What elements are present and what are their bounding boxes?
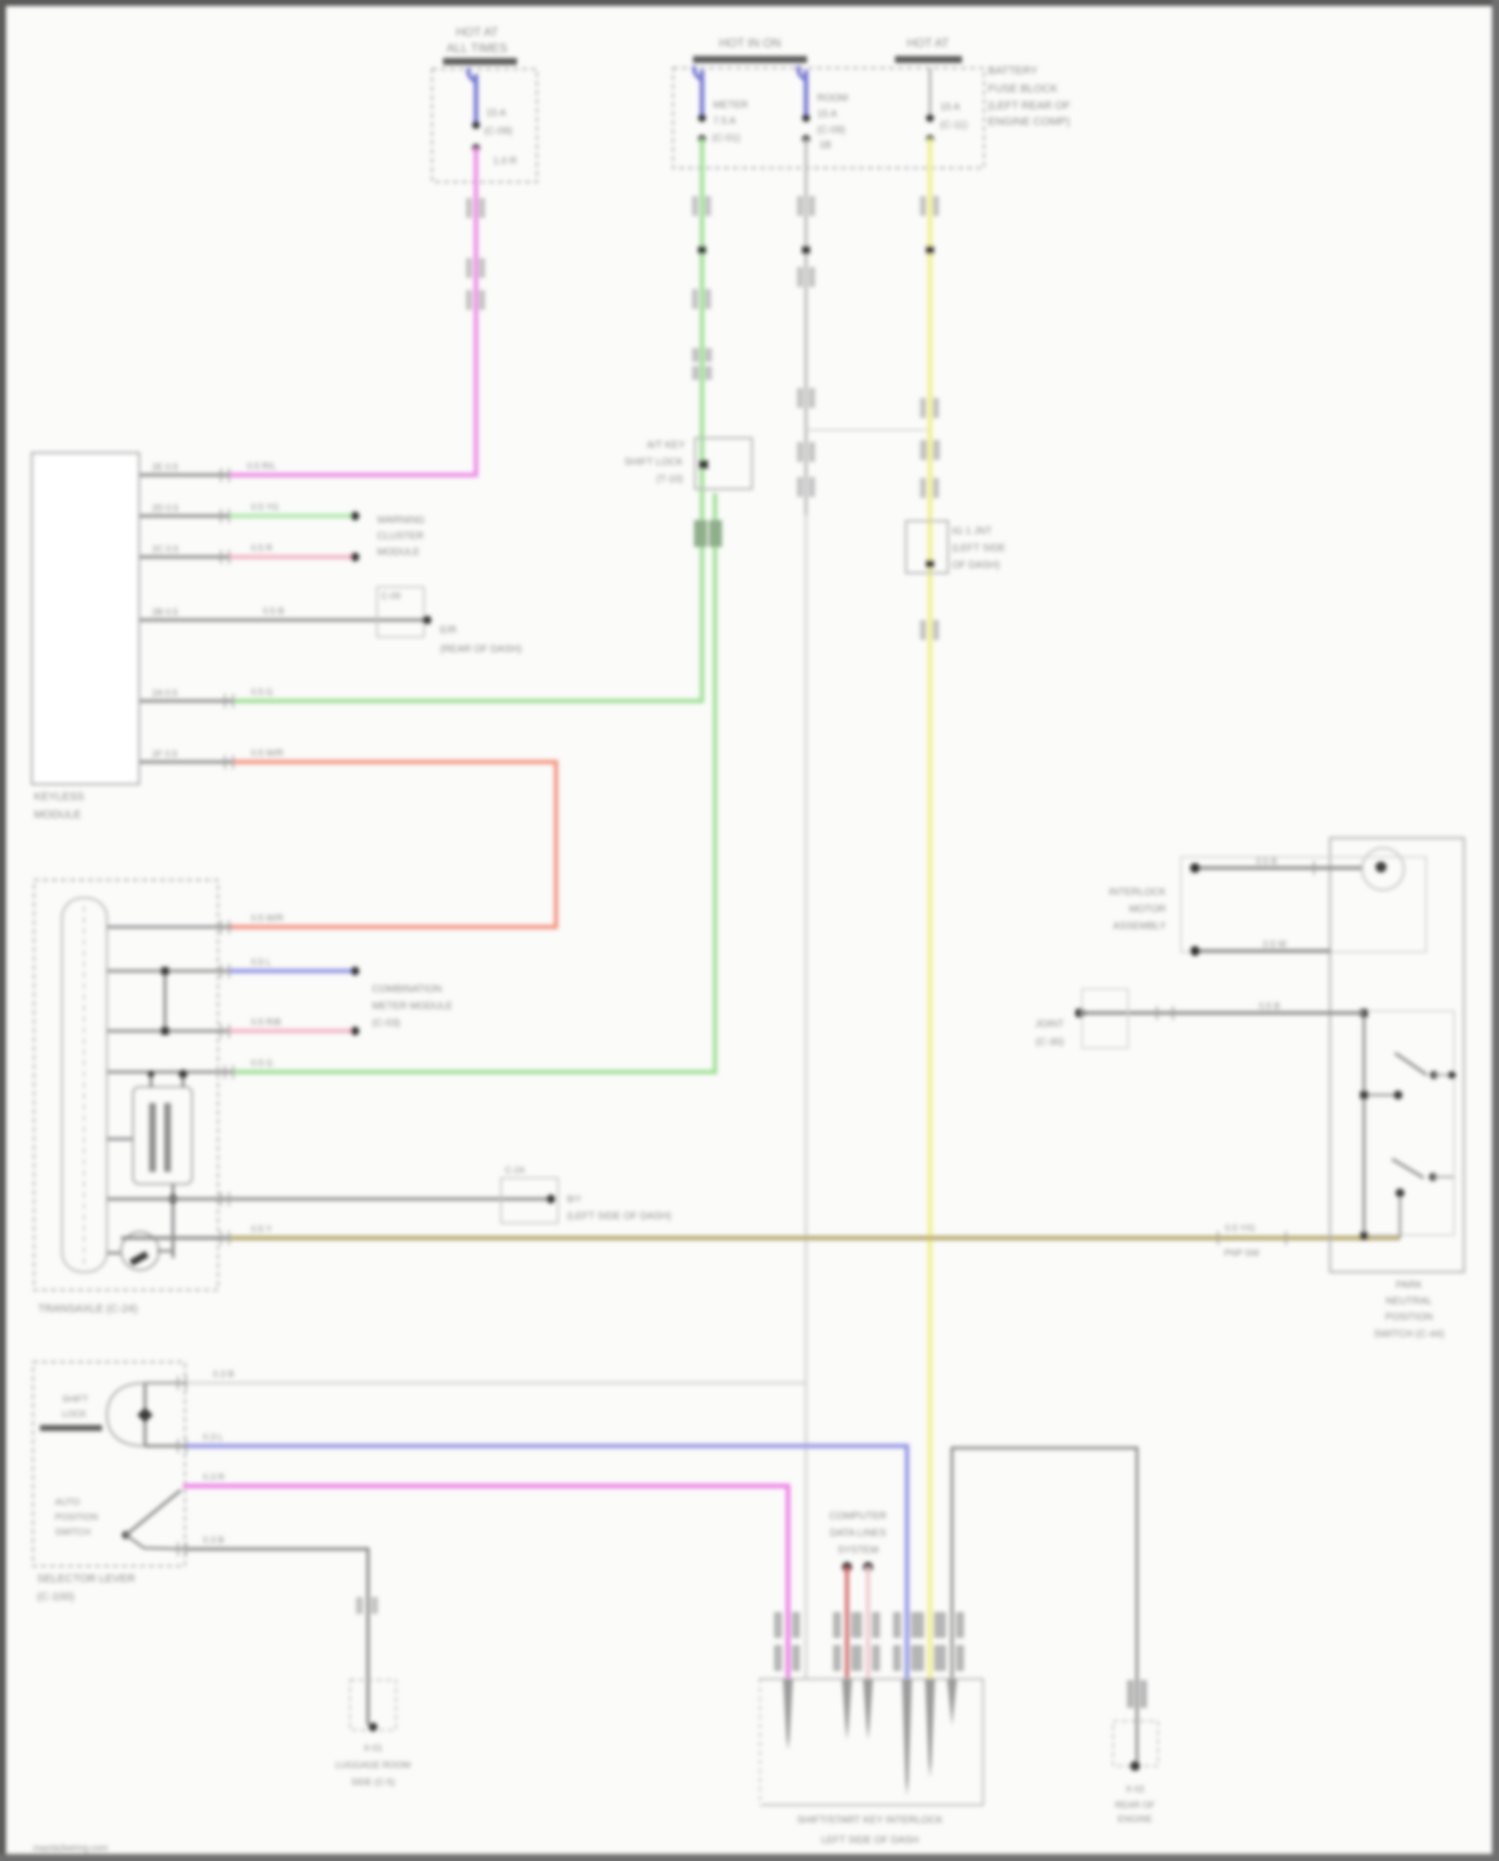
svg-text:(T-10): (T-10) — [656, 474, 683, 485]
svg-text:PARK: PARK — [1396, 1280, 1423, 1291]
svg-text:HOT AT: HOT AT — [907, 36, 950, 50]
svg-text:SWITCH: SWITCH — [55, 1527, 91, 1537]
svg-text:HOT AT: HOT AT — [456, 25, 499, 39]
svg-text:REAR OF: REAR OF — [1115, 1800, 1156, 1810]
svg-text:15 A: 15 A — [940, 102, 960, 113]
svg-text:0.5 B: 0.5 B — [263, 606, 284, 616]
svg-text:mazda3wiring.com: mazda3wiring.com — [33, 1843, 108, 1853]
svg-text:DATA LINES: DATA LINES — [830, 1528, 887, 1539]
svg-text:LEFT SIDE OF DASH: LEFT SIDE OF DASH — [821, 1835, 919, 1846]
svg-text:ALL TIMES: ALL TIMES — [447, 41, 508, 55]
svg-text:B/Y: B/Y — [567, 1194, 582, 1204]
svg-text:INTERLOCK: INTERLOCK — [1109, 887, 1167, 898]
svg-text:0.5 W/R: 0.5 W/R — [251, 748, 284, 758]
svg-text:0.5 B: 0.5 B — [1259, 1001, 1280, 1011]
svg-text:LUGGAGE ROOM: LUGGAGE ROOM — [335, 1760, 410, 1770]
svg-text:SHIFT: SHIFT — [62, 1394, 89, 1404]
svg-text:2F 0.5: 2F 0.5 — [152, 749, 178, 759]
svg-text:0.5 Y/G: 0.5 Y/G — [1225, 1223, 1255, 1233]
svg-text:(LEFT REAR OF: (LEFT REAR OF — [988, 100, 1071, 112]
svg-text:C-09: C-09 — [381, 591, 401, 601]
svg-text:(LEFT SIDE: (LEFT SIDE — [952, 543, 1006, 554]
svg-text:2C 0.5: 2C 0.5 — [152, 544, 179, 554]
svg-text:2B 0.5: 2B 0.5 — [152, 607, 178, 617]
svg-text:0.3 L: 0.3 L — [203, 1432, 223, 1442]
svg-text:0.5 G: 0.5 G — [251, 1058, 273, 1068]
svg-text:2E 0.5: 2E 0.5 — [152, 462, 178, 472]
svg-text:SHIFT/START KEY INTERLOCK: SHIFT/START KEY INTERLOCK — [797, 1815, 943, 1826]
svg-text:LOCK: LOCK — [62, 1409, 87, 1419]
svg-text:SELECTOR LEVER: SELECTOR LEVER — [37, 1573, 135, 1585]
svg-text:IG 1 JNT: IG 1 JNT — [952, 526, 992, 537]
svg-text:A/T KEY: A/T KEY — [647, 440, 685, 451]
svg-text:(C-100): (C-100) — [37, 1591, 74, 1603]
svg-text:(C-30): (C-30) — [1036, 1037, 1064, 1048]
svg-text:BATTERY: BATTERY — [988, 65, 1038, 77]
svg-text:0.5 G: 0.5 G — [251, 687, 273, 697]
svg-text:SWITCH (C-44): SWITCH (C-44) — [1374, 1329, 1445, 1340]
svg-text:ROOM: ROOM — [817, 93, 848, 104]
svg-text:HOT IN ON: HOT IN ON — [719, 36, 781, 50]
svg-text:0.5 W: 0.5 W — [1263, 939, 1287, 949]
svg-text:AUTO: AUTO — [55, 1497, 80, 1507]
svg-text:ASSEMBLY: ASSEMBLY — [1113, 921, 1166, 932]
svg-text:POSITION: POSITION — [55, 1512, 98, 1522]
svg-text:CLUSTER: CLUSTER — [377, 531, 424, 542]
svg-text:7.5 A: 7.5 A — [713, 116, 736, 127]
svg-text:NEUTRAL: NEUTRAL — [1386, 1296, 1433, 1307]
svg-text:0.3 B: 0.3 B — [213, 1369, 234, 1379]
svg-text:0.5 Y: 0.5 Y — [251, 1224, 272, 1234]
svg-text:0.5 R/B: 0.5 R/B — [251, 1017, 281, 1027]
svg-text:1.0 R: 1.0 R — [493, 156, 517, 167]
svg-text:15 A: 15 A — [817, 109, 837, 120]
svg-text:MOTOR: MOTOR — [1129, 904, 1166, 915]
svg-text:KEYLESS: KEYLESS — [34, 791, 84, 803]
svg-text:(REAR OF DASH): (REAR OF DASH) — [440, 644, 522, 655]
svg-text:OF DASH): OF DASH) — [952, 560, 1000, 571]
svg-text:0.5 R: 0.5 R — [251, 543, 273, 553]
svg-text:MODULE: MODULE — [34, 809, 81, 821]
svg-text:WARNING: WARNING — [377, 515, 425, 526]
svg-text:0.3 R: 0.3 R — [203, 1472, 225, 1482]
svg-text:X-01: X-01 — [363, 1743, 382, 1753]
svg-text:JOINT: JOINT — [1035, 1019, 1064, 1030]
svg-text:TRANSAXLE (C-24): TRANSAXLE (C-24) — [38, 1303, 138, 1315]
svg-text:(C-09): (C-09) — [484, 126, 512, 137]
svg-text:SHIFT LOCK: SHIFT LOCK — [624, 457, 683, 468]
svg-text:COMPUTER: COMPUTER — [829, 1511, 886, 1522]
svg-text:(LEFT SIDE OF DASH): (LEFT SIDE OF DASH) — [567, 1211, 671, 1222]
svg-text:1B: 1B — [819, 140, 832, 151]
svg-text:X-02: X-02 — [1125, 1784, 1144, 1794]
svg-text:E/R: E/R — [440, 625, 457, 636]
svg-text:SIDE (C-5): SIDE (C-5) — [351, 1777, 395, 1787]
svg-text:C-24: C-24 — [505, 1165, 525, 1175]
svg-text:(C-03): (C-03) — [372, 1018, 400, 1029]
svg-text:(C-11): (C-11) — [940, 120, 968, 131]
svg-text:2A 0.5: 2A 0.5 — [152, 688, 178, 698]
svg-text:METER: METER — [713, 100, 748, 111]
svg-text:ENGINE: ENGINE — [1118, 1814, 1153, 1824]
svg-text:0.5 L: 0.5 L — [251, 957, 271, 967]
svg-text:SYSTEM: SYSTEM — [837, 1545, 878, 1556]
svg-text:15 A: 15 A — [486, 108, 506, 119]
svg-text:METER MODULE: METER MODULE — [372, 1001, 453, 1012]
svg-text:2D 0.5: 2D 0.5 — [152, 503, 179, 513]
svg-text:MODULE: MODULE — [377, 547, 420, 558]
svg-text:(C-01): (C-01) — [712, 133, 740, 144]
svg-text:0.5 YG: 0.5 YG — [251, 502, 279, 512]
svg-text:FUSE BLOCK: FUSE BLOCK — [988, 83, 1058, 95]
svg-text:PNP SW: PNP SW — [1224, 1248, 1260, 1258]
svg-text:ENGINE COMP): ENGINE COMP) — [988, 116, 1070, 128]
svg-text:COMBINATION: COMBINATION — [372, 984, 442, 995]
svg-text:0.5 R/L: 0.5 R/L — [247, 461, 276, 471]
svg-text:0.5 W/R: 0.5 W/R — [251, 913, 284, 923]
svg-text:0.5 B: 0.5 B — [1256, 856, 1277, 866]
svg-text:(C-09): (C-09) — [817, 125, 845, 136]
svg-text:0.3 B: 0.3 B — [203, 1535, 224, 1545]
svg-text:POSITION: POSITION — [1385, 1312, 1433, 1323]
